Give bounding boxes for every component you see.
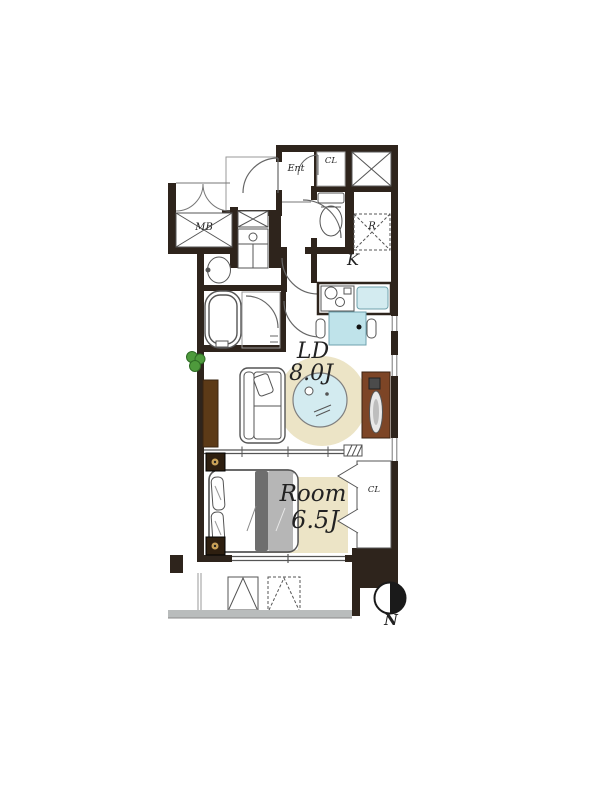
pipe-space-top-right (352, 152, 391, 186)
window-room-bottom (232, 554, 345, 563)
console-shelf (203, 380, 218, 447)
washing-machine-pan (238, 229, 268, 268)
window-right-wall (392, 316, 397, 461)
porch-outline (226, 157, 276, 210)
ac-unit-dashed (268, 577, 300, 611)
kitchen-label: K (342, 252, 364, 268)
meter-box-doors (176, 183, 230, 211)
compass-north-label: N (378, 613, 404, 628)
plant (187, 352, 206, 372)
balcony-partition (198, 573, 201, 610)
bedroom-label: Room (276, 483, 350, 506)
bathroom-door (242, 292, 280, 348)
balcony-railing (168, 610, 352, 618)
compass-north-icon (375, 582, 406, 613)
bedroom-closet-label: CL (362, 486, 386, 495)
pipe-space-small (238, 211, 268, 227)
kitchen-counter (318, 283, 391, 314)
refrigerator-label: R (363, 222, 381, 232)
nightstand-top (206, 453, 225, 471)
front-door (243, 158, 278, 193)
tv-board (362, 372, 390, 438)
entrance-label: Ent (283, 164, 309, 174)
washbasin (206, 257, 231, 283)
ac-unit-solid (228, 577, 258, 610)
bathtub (205, 291, 241, 348)
sofa (240, 368, 285, 443)
refrigerator-space (354, 214, 390, 250)
hall-door-washroom (282, 258, 318, 294)
hall-door-living (284, 301, 320, 337)
meter-box-label: MB (186, 223, 222, 233)
partition-sliding-door (204, 445, 362, 457)
nightstand-bottom (206, 537, 225, 555)
entrance-closet-label: CL (320, 157, 342, 166)
living-dining-size: 8.0J (280, 363, 342, 385)
floor-plan: Ent CL R K MB LD 8.0J Room 6.5J CL N (0, 0, 600, 800)
bedroom-size: 6.5J (284, 508, 346, 532)
bedroom-closet-box (357, 461, 391, 548)
plan-graphics (0, 0, 600, 800)
living-dining-label: LD (287, 341, 339, 363)
